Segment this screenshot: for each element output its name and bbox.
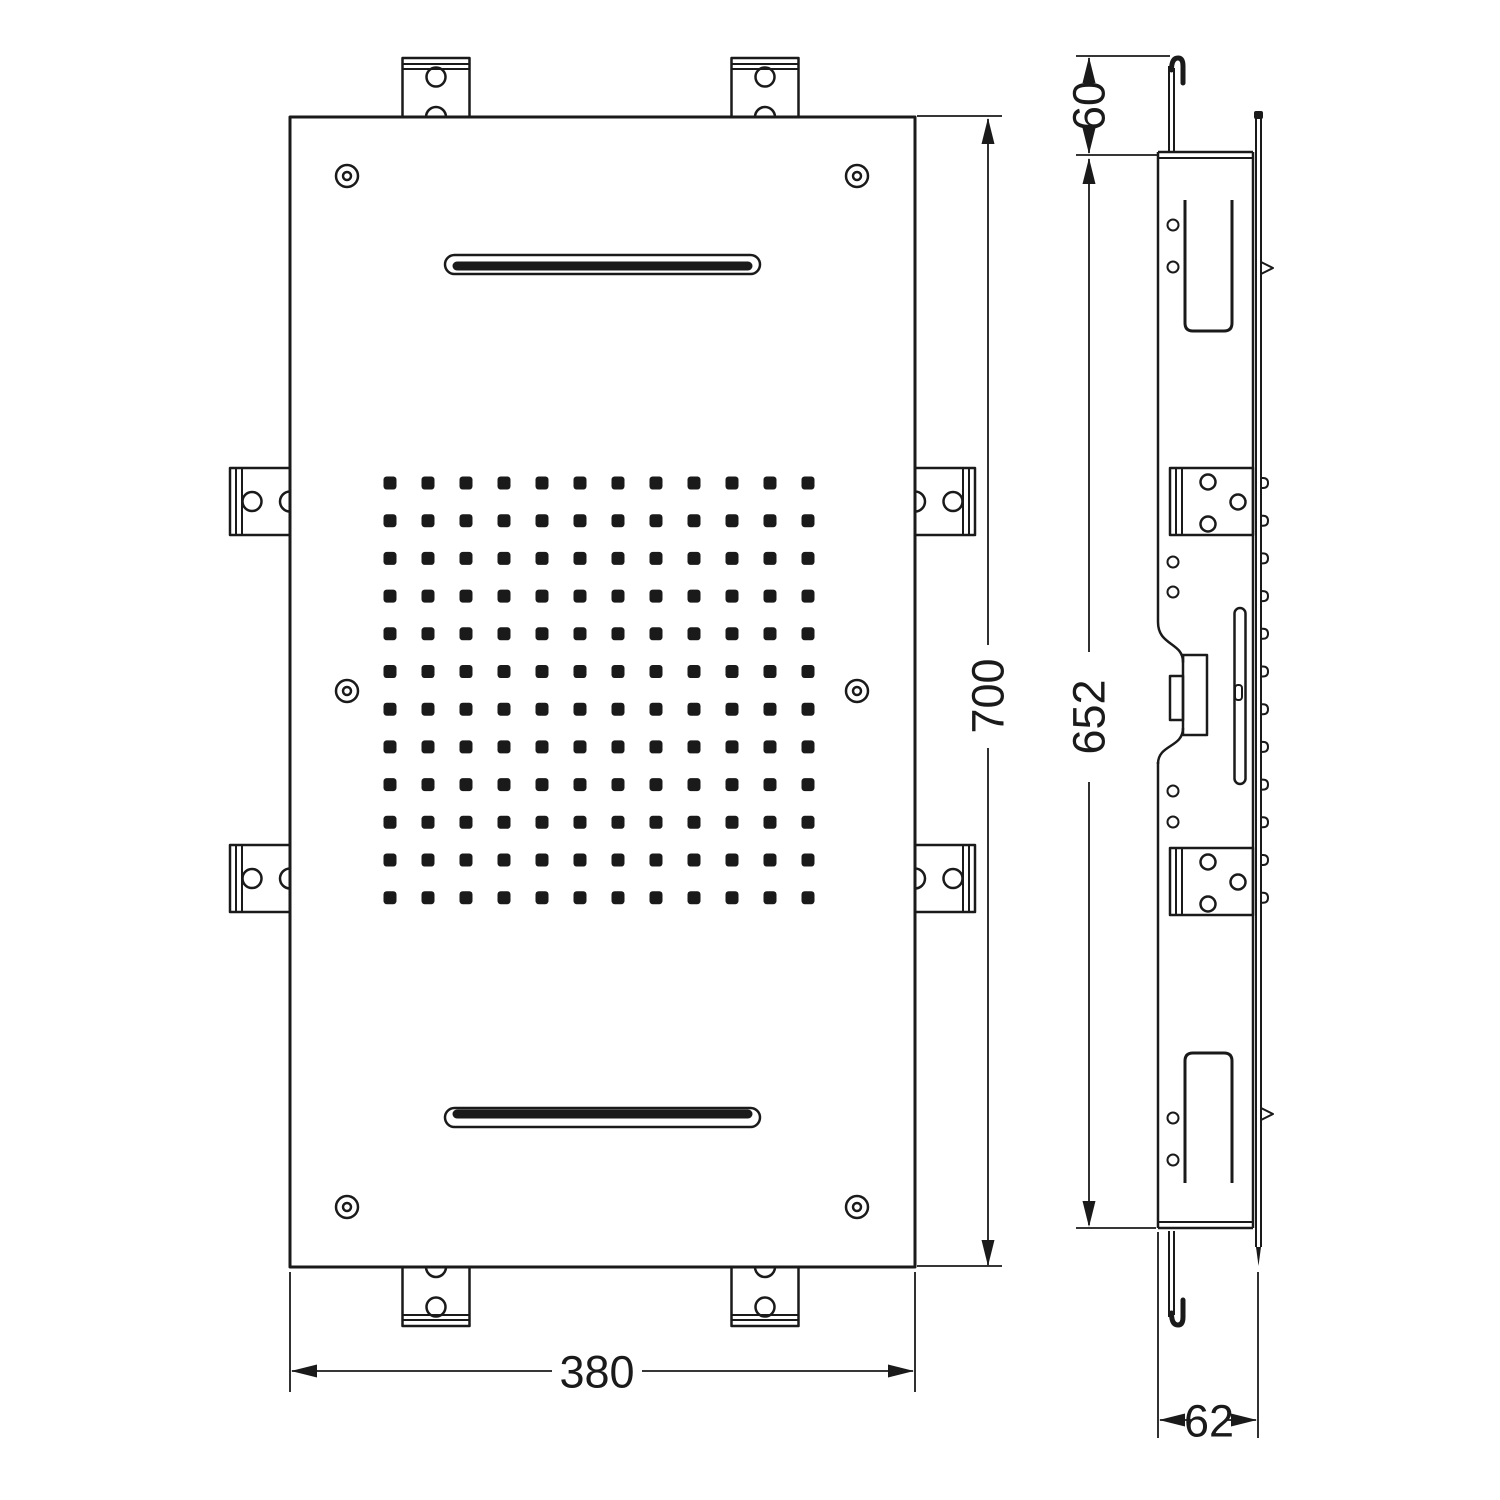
nozzle-hole: [726, 816, 739, 829]
nozzle-hole: [536, 665, 549, 678]
nozzle-hole: [422, 477, 435, 490]
nozzle-hole: [612, 740, 625, 753]
nozzle-hole: [574, 740, 587, 753]
nozzle-hole: [802, 816, 815, 829]
nozzle-hole: [422, 816, 435, 829]
nozzle-hole: [422, 552, 435, 565]
nozzle-hole: [498, 552, 511, 565]
nozzle-hole: [764, 816, 777, 829]
nozzle-hole: [536, 740, 549, 753]
nozzle-hole: [422, 891, 435, 904]
nozzle-hole: [764, 891, 777, 904]
mounting-tab-top-right: [732, 58, 799, 117]
nozzle-hole: [802, 590, 815, 603]
pin-hole: [1168, 786, 1179, 797]
nozzle-hole: [460, 665, 473, 678]
nozzle-hole: [498, 740, 511, 753]
nozzle-hole: [536, 778, 549, 791]
nozzle-hole: [612, 778, 625, 791]
nozzle-hole: [460, 627, 473, 640]
nozzle-hole: [688, 477, 701, 490]
nozzle-hole: [384, 740, 397, 753]
nozzle-hole: [764, 665, 777, 678]
nozzle-bump: [1261, 667, 1268, 677]
dimension-hook-60: 60: [1064, 56, 1171, 155]
screw-hole-center: [853, 1203, 861, 1211]
arrow-left-icon: [1159, 1414, 1185, 1427]
nozzle-bump: [1261, 855, 1268, 865]
nozzle-hole: [536, 816, 549, 829]
nozzle-hole: [536, 477, 549, 490]
nozzle-hole: [764, 514, 777, 527]
nozzle-hole: [536, 627, 549, 640]
nozzle-hole: [460, 590, 473, 603]
nozzle-hole: [612, 891, 625, 904]
nozzle-hole: [802, 703, 815, 716]
nozzle-hole: [764, 477, 777, 490]
nozzle-hole: [384, 514, 397, 527]
arrow-down-icon: [1083, 1201, 1096, 1227]
nozzle-hole: [650, 590, 663, 603]
nozzle-bumps: [1261, 478, 1268, 903]
nozzle-hole: [650, 703, 663, 716]
dim-380-label: 380: [559, 1347, 634, 1398]
nozzle-hole: [384, 854, 397, 867]
nozzle-hole: [726, 854, 739, 867]
screw-hole-center: [343, 1203, 351, 1211]
nozzle-hole: [688, 854, 701, 867]
nozzle-hole: [650, 552, 663, 565]
screw-hole-center: [343, 687, 351, 695]
nozzle-hole: [574, 552, 587, 565]
nozzle-hole: [612, 552, 625, 565]
nozzle-bump: [1261, 591, 1268, 601]
lower-channel-bracket: [1185, 1053, 1232, 1183]
nozzle-hole: [802, 854, 815, 867]
arrow-right-icon: [888, 1365, 914, 1378]
upper-channel-bracket: [1185, 200, 1232, 331]
nozzle-hole: [498, 703, 511, 716]
nozzle-hole: [422, 703, 435, 716]
nozzle-hole: [384, 891, 397, 904]
nozzle-hole: [688, 552, 701, 565]
nozzle-hole: [498, 514, 511, 527]
nozzle-hole: [650, 854, 663, 867]
nozzle-hole: [574, 854, 587, 867]
nozzle-hole: [422, 514, 435, 527]
nozzle-hole: [726, 778, 739, 791]
nozzle-hole: [498, 627, 511, 640]
nozzle-hole: [460, 477, 473, 490]
nozzle-hole: [498, 891, 511, 904]
screw-hole-center: [853, 172, 861, 180]
nozzle-hole: [764, 627, 777, 640]
front-panel-outline: [290, 117, 915, 1267]
arrow-down-icon: [982, 1240, 995, 1266]
nozzle-hole: [726, 665, 739, 678]
center-slot: [1235, 608, 1246, 784]
screw-hole: [846, 1196, 868, 1218]
nozzle-hole: [498, 590, 511, 603]
nozzle-hole: [460, 740, 473, 753]
nozzle-hole: [384, 552, 397, 565]
screw-hole-center: [853, 687, 861, 695]
nozzle-hole: [688, 590, 701, 603]
nozzle-hole: [802, 891, 815, 904]
mounting-tab-left-lower: [230, 845, 290, 912]
nozzle-hole: [536, 514, 549, 527]
nozzle-bump: [1261, 629, 1268, 639]
arrow-up-icon: [1083, 158, 1096, 184]
screw-hole: [846, 165, 868, 187]
nozzle-hole: [498, 778, 511, 791]
pin-hole: [1168, 220, 1179, 231]
screw-hole: [336, 165, 358, 187]
nozzle-hole: [536, 552, 549, 565]
pin-hole: [1168, 262, 1179, 273]
pin-hole: [1168, 1113, 1179, 1124]
nozzle-hole: [688, 665, 701, 678]
nozzle-hole: [460, 514, 473, 527]
nozzle-hole: [574, 703, 587, 716]
nozzle-hole: [460, 552, 473, 565]
nozzle-hole: [650, 627, 663, 640]
nozzle-hole: [764, 740, 777, 753]
rain-nozzle-grid: [384, 477, 815, 905]
screw-hole: [336, 680, 358, 702]
faceplate-screws: [336, 165, 868, 1218]
nozzle-bump: [1261, 817, 1268, 827]
nozzle-hole: [574, 627, 587, 640]
mounting-tab-left-upper: [230, 468, 290, 535]
arrow-left-icon: [291, 1365, 317, 1378]
nozzle-hole: [422, 740, 435, 753]
nozzle-hole: [574, 514, 587, 527]
nozzle-hole: [498, 816, 511, 829]
nozzle-hole: [612, 665, 625, 678]
nozzle-hole: [726, 891, 739, 904]
pin-hole: [1168, 557, 1179, 568]
nozzle-hole: [384, 477, 397, 490]
ceiling-hook-top: [1169, 58, 1183, 152]
nozzle-hole: [384, 703, 397, 716]
nozzle-hole: [726, 590, 739, 603]
nozzle-hole: [802, 778, 815, 791]
face-plate-edge: [1254, 111, 1263, 1266]
nozzle-hole: [612, 514, 625, 527]
nozzle-hole: [384, 665, 397, 678]
nozzle-hole: [422, 854, 435, 867]
nozzle-hole: [764, 778, 777, 791]
nozzle-hole: [612, 627, 625, 640]
nozzle-hole: [460, 891, 473, 904]
nozzle-bump: [1261, 553, 1268, 563]
dim-62-label: 62: [1184, 1396, 1234, 1447]
nozzle-hole: [650, 477, 663, 490]
nozzle-hole: [536, 703, 549, 716]
nozzle-hole: [802, 665, 815, 678]
arrow-up-icon: [982, 118, 995, 144]
nozzle-hole: [726, 703, 739, 716]
nozzle-hole: [574, 816, 587, 829]
screw-hole: [846, 680, 868, 702]
spout-tip: [1261, 1108, 1273, 1120]
nozzle-bump: [1261, 478, 1268, 488]
nozzle-hole: [574, 665, 587, 678]
nozzle-hole: [460, 854, 473, 867]
nozzle-hole: [384, 778, 397, 791]
dimension-height-700: 700: [917, 116, 1014, 1266]
mounting-tab-bottom-right: [732, 1267, 799, 1326]
nozzle-bump: [1261, 893, 1268, 903]
nozzle-hole: [688, 816, 701, 829]
nozzle-hole: [384, 627, 397, 640]
nozzle-hole: [612, 590, 625, 603]
nozzle-bump: [1261, 742, 1268, 752]
nozzle-hole: [688, 514, 701, 527]
nozzle-hole: [764, 854, 777, 867]
nozzle-hole: [802, 477, 815, 490]
nozzle-hole: [688, 778, 701, 791]
mounting-tab-bottom-left: [403, 1267, 470, 1326]
mounting-tab-top-left: [403, 58, 470, 117]
nozzle-hole: [498, 665, 511, 678]
nozzle-hole: [536, 891, 549, 904]
nozzle-hole: [802, 740, 815, 753]
water-inlet-connector: [1170, 655, 1207, 735]
nozzle-hole: [650, 740, 663, 753]
nozzle-hole: [460, 778, 473, 791]
nozzle-hole: [498, 854, 511, 867]
nozzle-hole: [726, 477, 739, 490]
pin-hole: [1168, 587, 1179, 598]
shower-head-technical-drawing: 700 380: [0, 0, 1500, 1500]
spout-tip: [1261, 262, 1273, 274]
nozzle-bump: [1261, 780, 1268, 790]
nozzle-hole: [498, 477, 511, 490]
nozzle-hole: [650, 778, 663, 791]
side-bracket-lower: [1170, 848, 1253, 915]
nozzle-hole: [726, 552, 739, 565]
nozzle-hole: [384, 590, 397, 603]
dimension-body-652: 652: [1064, 158, 1157, 1228]
front-view: 700 380: [230, 58, 1014, 1398]
nozzle-hole: [802, 552, 815, 565]
nozzle-hole: [764, 703, 777, 716]
side-bracket-upper: [1170, 468, 1253, 535]
nozzle-bump: [1261, 516, 1268, 526]
nozzle-hole: [612, 816, 625, 829]
dim-700-label: 700: [963, 658, 1014, 733]
dim-60-label: 60: [1064, 81, 1115, 131]
waterfall-spout-tips: [1261, 262, 1273, 1120]
nozzle-hole: [384, 816, 397, 829]
dim-652-label: 652: [1064, 679, 1115, 754]
nozzle-hole: [650, 816, 663, 829]
waterfall-slot-top: [445, 255, 760, 274]
mounting-tab-right-lower: [915, 845, 975, 912]
nozzle-hole: [764, 590, 777, 603]
nozzle-bump: [1261, 704, 1268, 714]
nozzle-hole: [612, 477, 625, 490]
nozzle-hole: [650, 514, 663, 527]
pin-hole: [1168, 1155, 1179, 1166]
waterfall-slot-bottom: [445, 1108, 760, 1127]
nozzle-hole: [460, 703, 473, 716]
nozzle-hole: [764, 552, 777, 565]
nozzle-hole: [802, 514, 815, 527]
nozzle-hole: [612, 703, 625, 716]
nozzle-hole: [688, 627, 701, 640]
nozzle-hole: [726, 627, 739, 640]
nozzle-hole: [650, 891, 663, 904]
nozzle-hole: [612, 854, 625, 867]
arrow-right-icon: [1231, 1414, 1257, 1427]
nozzle-hole: [422, 627, 435, 640]
nozzle-hole: [422, 590, 435, 603]
nozzle-hole: [688, 891, 701, 904]
nozzle-hole: [422, 665, 435, 678]
mounting-tab-right-upper: [915, 468, 975, 535]
pin-hole: [1168, 817, 1179, 828]
nozzle-hole: [574, 477, 587, 490]
nozzle-hole: [726, 740, 739, 753]
dimension-width-380: 380: [290, 1272, 915, 1398]
nozzle-hole: [650, 665, 663, 678]
side-view: 60 652 62: [1064, 56, 1274, 1447]
nozzle-hole: [688, 740, 701, 753]
nozzle-hole: [536, 854, 549, 867]
screw-hole: [336, 1196, 358, 1218]
nozzle-hole: [574, 891, 587, 904]
nozzle-hole: [422, 778, 435, 791]
nozzle-hole: [536, 590, 549, 603]
screw-hole-center: [343, 172, 351, 180]
nozzle-hole: [574, 590, 587, 603]
arrow-up-icon: [1083, 57, 1096, 83]
ceiling-hook-bottom: [1169, 1231, 1183, 1325]
nozzle-hole: [574, 778, 587, 791]
nozzle-hole: [688, 703, 701, 716]
nozzle-hole: [802, 627, 815, 640]
technical-drawing-page: 700 380: [0, 0, 1500, 1500]
nozzle-hole: [726, 514, 739, 527]
nozzle-hole: [460, 816, 473, 829]
